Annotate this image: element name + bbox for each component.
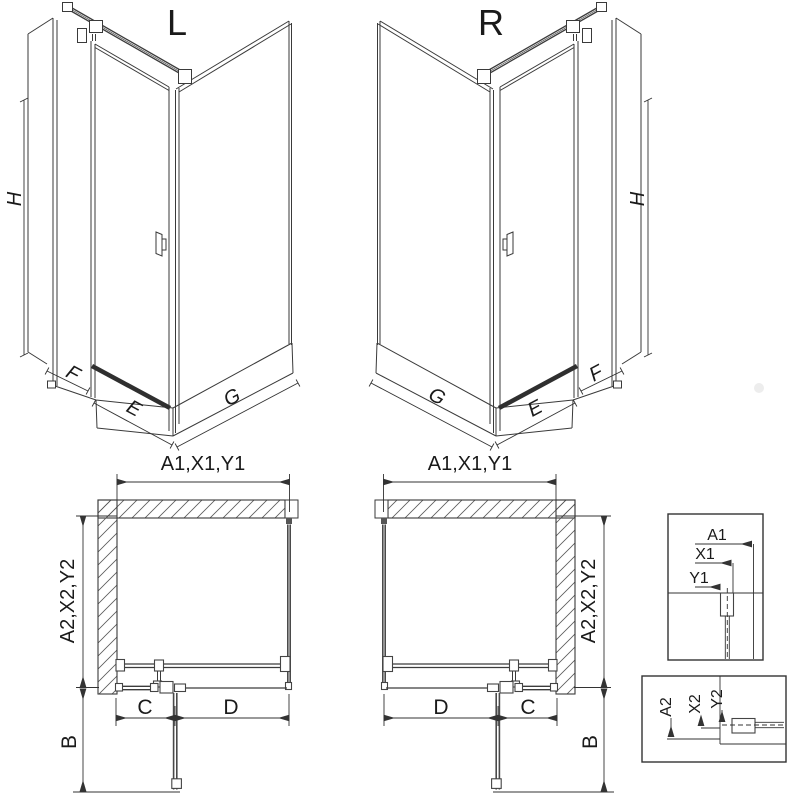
panel-foot	[614, 381, 622, 388]
label-c: C	[520, 696, 535, 719]
label-g: G	[425, 383, 449, 410]
label-d: D	[223, 696, 238, 719]
label-f: F	[62, 361, 85, 387]
label-a1: A1	[707, 527, 727, 544]
label-h: H	[627, 191, 649, 206]
door-handle	[172, 779, 182, 789]
label-y1: Y1	[689, 570, 709, 587]
wall-profile	[285, 500, 298, 518]
stabilizer-bar	[383, 657, 557, 688]
label-f: F	[586, 360, 609, 386]
open-door	[172, 693, 182, 790]
wall-left	[98, 500, 117, 694]
iso-left-view: L H F E G	[4, 2, 300, 451]
wall-top	[98, 500, 285, 518]
drawing-canvas: L H F E G R H F E G	[0, 0, 800, 800]
label-e: E	[123, 396, 146, 422]
iso-right-dimensions: R H F E G	[369, 2, 652, 451]
detail-box-bottom: A2 X2 Y2	[642, 676, 786, 762]
open-door	[492, 693, 502, 790]
label-b: B	[579, 735, 602, 749]
label-g: G	[220, 384, 244, 411]
shower-enclosure-dimension-drawing: L H F E G R H F E G	[0, 0, 800, 800]
wall-profile	[375, 500, 388, 518]
door-front-line	[116, 682, 288, 694]
door-handle	[503, 232, 513, 256]
label-x1: X1	[695, 546, 715, 563]
label-a2: A2	[658, 697, 675, 717]
glass-profile	[732, 719, 755, 734]
plan-left-view: A1,X1,Y1 A2,X2,Y2 B C D	[57, 453, 298, 792]
label-c: C	[137, 696, 152, 719]
label-width: A1,X1,Y1	[428, 453, 513, 475]
view-title-right: R	[478, 2, 504, 43]
label-e: E	[524, 396, 547, 422]
door-handle	[492, 779, 502, 789]
label-h: H	[4, 191, 26, 206]
door-front-line	[386, 682, 558, 694]
stabilizer-bar	[116, 657, 290, 688]
label-width: A1,X1,Y1	[161, 453, 246, 475]
watermark-dot	[754, 383, 764, 393]
view-title-left: L	[167, 2, 187, 43]
label-depth: A2,X2,Y2	[578, 559, 600, 644]
glass-fitting	[286, 518, 292, 524]
wall-right	[556, 500, 575, 694]
panel-foot	[48, 381, 56, 388]
iso-right-view: R H F E G	[369, 2, 652, 451]
label-depth: A2,X2,Y2	[57, 559, 79, 644]
glass-fitting	[381, 518, 387, 524]
plan-right-view: A1,X1,Y1 A2,X2,Y2 B D C	[375, 453, 614, 792]
door-handle	[156, 232, 166, 256]
label-y2: Y2	[709, 689, 726, 709]
label-b: B	[58, 735, 81, 749]
label-x2: X2	[687, 694, 704, 714]
detail-box-top: A1 X1 Y1	[668, 514, 763, 660]
label-d: D	[433, 696, 448, 719]
wall-top	[388, 500, 575, 518]
